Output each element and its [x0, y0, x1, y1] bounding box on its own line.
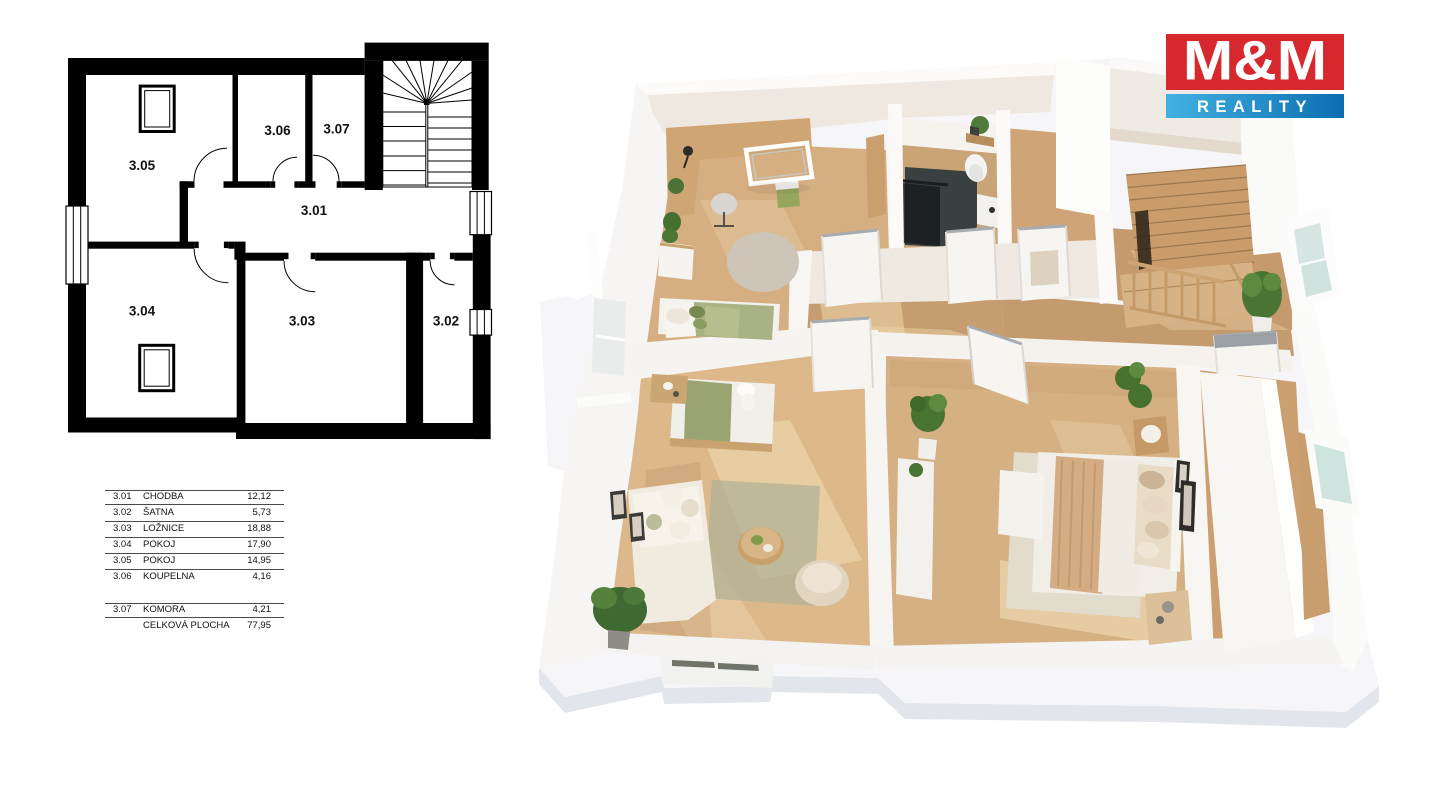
svg-text:3.06: 3.06 [264, 123, 291, 138]
svg-text:M&M: M&M [1183, 34, 1327, 90]
svg-text:3.07: 3.07 [323, 122, 349, 137]
svg-text:3.05: 3.05 [129, 158, 156, 173]
svg-text:3.02: 3.02 [433, 314, 459, 329]
svg-text:3.04: 3.04 [129, 304, 156, 319]
svg-text:REALITY: REALITY [1197, 98, 1313, 116]
svg-text:3.01: 3.01 [301, 203, 328, 218]
svg-text:3.03: 3.03 [289, 314, 316, 329]
